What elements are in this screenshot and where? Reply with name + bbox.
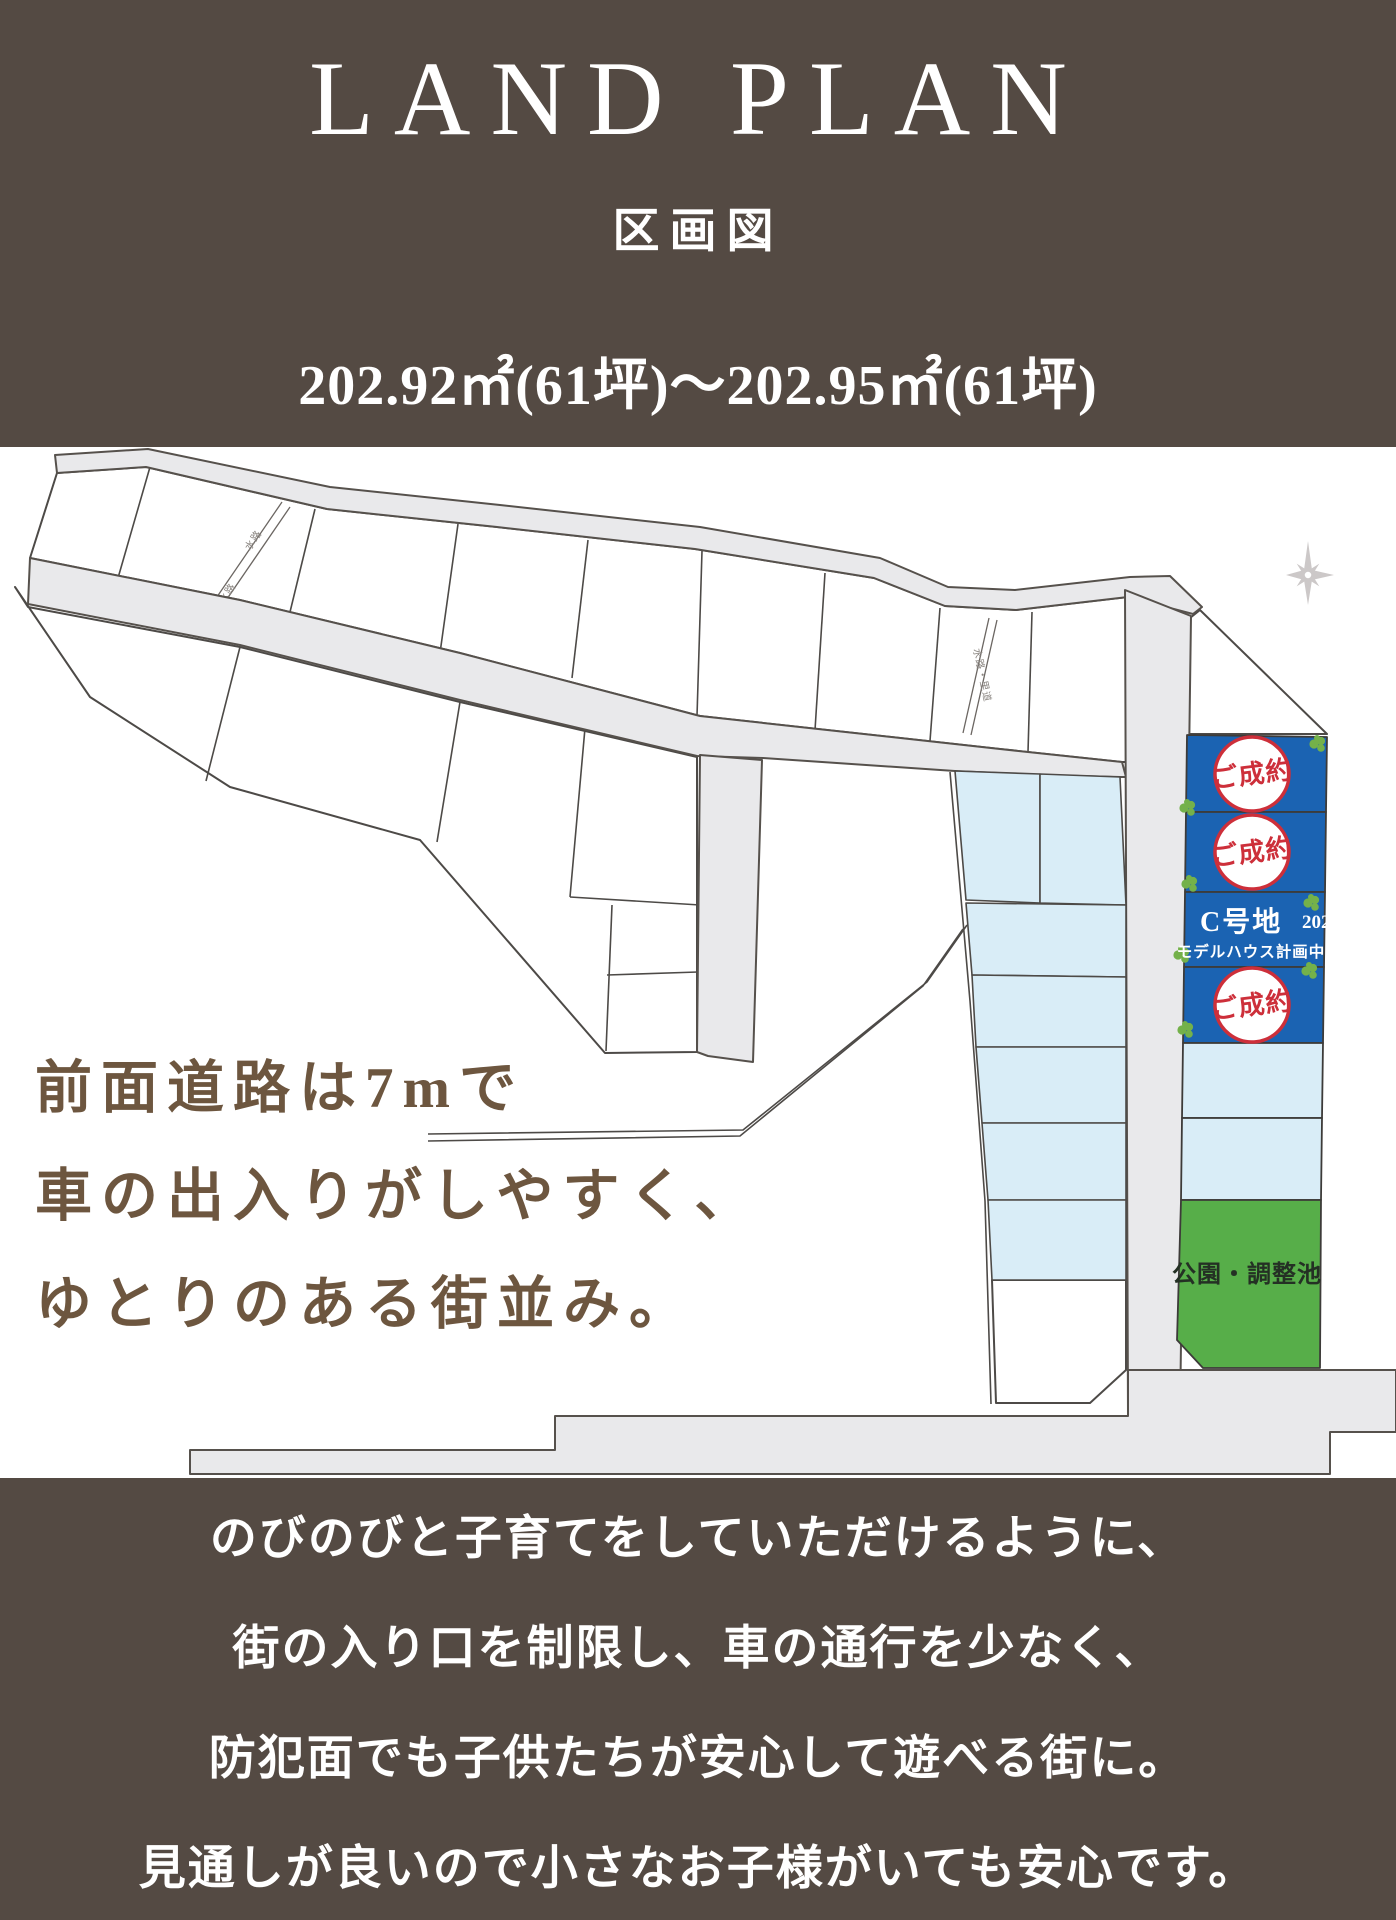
- park-label: 公園・調整池: [1172, 1260, 1322, 1288]
- footer-line: 防犯面でも子供たちが安心して遊べる街に。: [0, 1704, 1396, 1814]
- caption-line: 車の出入りがしやすく、: [35, 1143, 760, 1251]
- lot-light-blue: [988, 1200, 1126, 1280]
- sparkle-icon: [1285, 541, 1334, 605]
- lot-light-blue: [972, 975, 1126, 1047]
- caption-line: ゆとりのある街並み。: [35, 1251, 760, 1359]
- lot-c-status: モデルハウス計画中: [1177, 942, 1326, 961]
- lot-light-blue: [982, 1123, 1126, 1200]
- lot-c-name: C号地: [1200, 906, 1282, 938]
- lot-white-bottom-middle: [992, 1280, 1126, 1403]
- land-plan-flyer: LAND PLAN 区画図 202.92㎡(61坪)〜202.95㎡(61坪): [0, 0, 1396, 1920]
- page-title: LAND PLAN: [0, 38, 1396, 160]
- footer-line: のびのびと子育てをしていただけるように、: [0, 1484, 1396, 1594]
- road-bottom: [190, 1370, 1396, 1474]
- lot-light-blue: [1181, 1118, 1322, 1200]
- lot-light-blue: [1182, 1043, 1323, 1118]
- road-vertical-middle: [697, 755, 762, 1062]
- map-caption: 前面道路は7mで 車の出入りがしやすく、 ゆとりのある街並み。: [35, 1035, 760, 1359]
- area-range: 202.92㎡(61坪)〜202.95㎡(61坪): [0, 340, 1396, 421]
- lot-above-blue-column: [1187, 610, 1327, 734]
- lot-light-blue: [955, 771, 1040, 903]
- footer-panel: のびのびと子育てをしていただけるように、 街の入り口を制限し、車の通行を少なく、…: [0, 1478, 1396, 1920]
- lot-light-blue: [966, 903, 1126, 977]
- lot-light-blue: [976, 1047, 1126, 1123]
- middle-lot-column: [955, 771, 1126, 1280]
- lot-c-area: 202.92㎡: [1302, 910, 1373, 933]
- plot-map-section: 水路 水路 水路・里道: [0, 447, 1396, 1478]
- header-panel: LAND PLAN 区画図 202.92㎡(61坪)〜202.95㎡(61坪): [0, 0, 1396, 447]
- footer-line: 見通しが良いので小さなお子様がいても安心です。: [0, 1814, 1396, 1920]
- caption-line: 前面道路は7mで: [35, 1035, 760, 1143]
- lot-light-blue: [1040, 774, 1126, 905]
- page-subtitle: 区画図: [0, 192, 1396, 261]
- footer-line: 街の入り口を制限し、車の通行を少なく、: [0, 1594, 1396, 1704]
- footer-text: のびのびと子育てをしていただけるように、 街の入り口を制限し、車の通行を少なく、…: [0, 1478, 1396, 1920]
